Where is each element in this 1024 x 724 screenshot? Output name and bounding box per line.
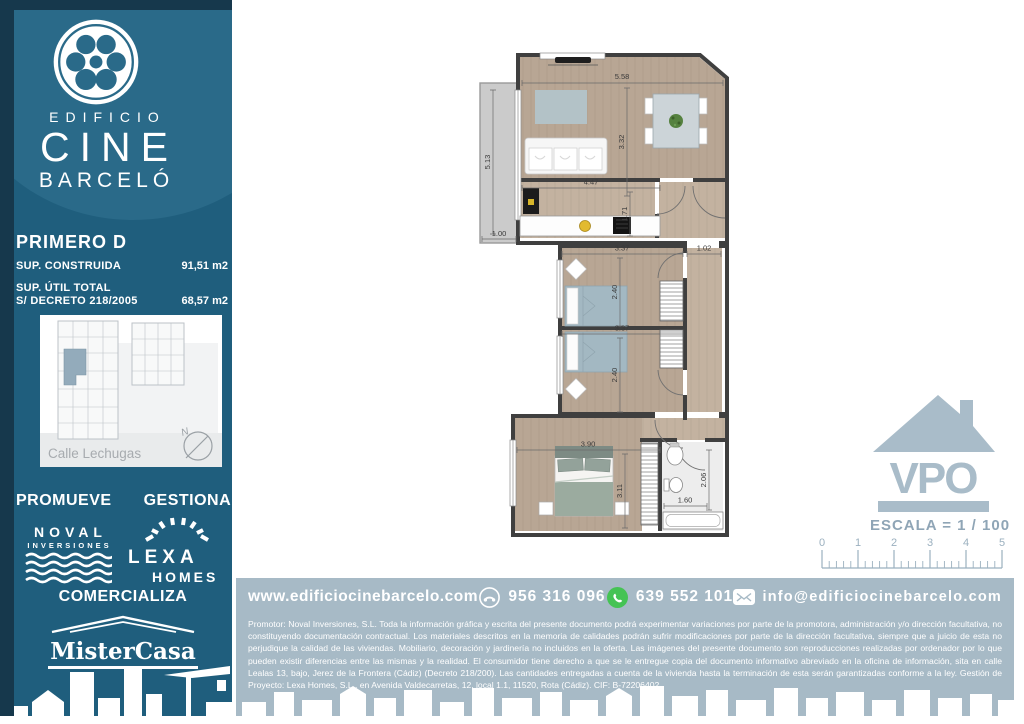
noval-logo: NOVAL INVERSIONES — [18, 524, 118, 589]
vpo-text: VPO — [890, 454, 978, 503]
brand-word-cine: CINE — [14, 125, 194, 169]
promueve-label: PROMUEVE — [16, 492, 112, 510]
scale-label: ESCALA = 1 / 100 — [852, 517, 1024, 534]
mistercasa-roof-icon — [48, 614, 198, 634]
useful-surface-label: SUP. ÚTIL TOTAL S/ DECRETO 218/2005 — [16, 282, 138, 308]
floorplan: 5.58 3.32 5.13 1.00 4.47 1.71 3.37 2.40 … — [455, 38, 805, 583]
site-map-drawing: Calle Lechugas N — [40, 315, 222, 467]
built-surface-row: SUP. CONSTRUIDA 91,51 m2 — [16, 260, 228, 273]
lexa-name: LEXA — [128, 547, 230, 569]
ruler-tick-3: 3 — [927, 537, 933, 549]
brand-word-edificio: EDIFICIO — [14, 109, 194, 125]
film-reel-icon — [50, 16, 142, 108]
ruler-tick-5: 5 — [999, 537, 1005, 549]
scale-ruler: 0 1 2 3 4 5 — [818, 534, 1010, 574]
noval-waves-icon — [24, 552, 112, 584]
dim-dorm1-depth: 2.40 — [610, 285, 619, 300]
plant — [669, 114, 683, 128]
ruler-tick-2: 2 — [891, 537, 897, 549]
phone-contact[interactable]: 956 316 096 — [478, 586, 605, 609]
ruler-tick-1: 1 — [855, 537, 861, 549]
brand-logo: EDIFICIO CINE BARCELÓ — [14, 109, 194, 193]
dim-dorm1-width: 3.37 — [615, 244, 630, 253]
noval-sub: INVERSIONES — [18, 541, 118, 550]
whatsapp-number: 639 552 101 — [636, 588, 733, 606]
sofa — [525, 138, 607, 174]
legal-disclaimer: Promotor: Noval Inversiones, S.L. Toda l… — [248, 618, 1002, 691]
sidebar-panel: EDIFICIO CINE BARCELÓ PRIMERO D SUP. CON… — [14, 10, 232, 716]
vpo-logo: VPO — [870, 393, 997, 515]
sidebar-skyline — [14, 654, 232, 716]
email-address: info@edificiocinebarcelo.com — [762, 589, 1002, 605]
dim-pasillo-width: 1.02 — [697, 244, 712, 253]
lexa-sub: HOMES — [152, 569, 230, 585]
phone-icon — [478, 586, 501, 609]
lexa-sun-icon — [134, 516, 218, 542]
dim-terraza-width: 1.00 — [492, 229, 507, 238]
built-surface-label: SUP. CONSTRUIDA — [16, 260, 121, 273]
dim-dorm2-depth: 2.40 — [610, 368, 619, 383]
building-outline-right — [132, 323, 184, 385]
sidebar: EDIFICIO CINE BARCELÓ PRIMERO D SUP. CON… — [0, 0, 232, 724]
ruler-tick-4: 4 — [963, 537, 969, 549]
built-surface-value: 91,51 m2 — [182, 260, 228, 273]
useful-surface-label-line2: S/ DECRETO 218/2005 — [16, 295, 138, 307]
fruit-bowl — [580, 221, 591, 232]
phone-number: 956 316 096 — [508, 588, 605, 606]
email-icon — [733, 589, 755, 605]
rug — [535, 90, 587, 124]
whatsapp-contact[interactable]: 639 552 101 — [606, 586, 733, 609]
whatsapp-icon — [606, 586, 629, 609]
ruler-tick-0: 0 — [819, 537, 825, 549]
contact-band: www.edificiocinebarcelo.com 956 316 096 … — [236, 578, 1014, 716]
footer-skyline — [236, 682, 1014, 716]
website-link[interactable]: www.edificiocinebarcelo.com — [248, 588, 478, 606]
unit-title: PRIMERO D — [16, 232, 127, 253]
dim-terraza-height: 5.13 — [483, 155, 492, 170]
street-label: Calle Lechugas — [48, 446, 141, 461]
contact-row: www.edificiocinebarcelo.com 956 316 096 … — [236, 578, 1014, 616]
dim-bano-width: 1.60 — [678, 496, 693, 505]
site-map: Calle Lechugas N — [40, 315, 222, 467]
dim-dorm2-width: 3.37 — [615, 324, 630, 333]
lexa-logo: LEXA HOMES — [126, 516, 230, 585]
dim-cocina-width: 4.47 — [584, 178, 599, 187]
dim-dorm3-depth: 3.11 — [615, 484, 624, 498]
dim-cocina-depth: 1.71 — [620, 207, 629, 222]
dining-set — [645, 94, 707, 148]
brochure-page: EDIFICIO CINE BARCELÓ PRIMERO D SUP. CON… — [0, 0, 1024, 724]
useful-surface-label-line1: SUP. ÚTIL TOTAL — [16, 282, 111, 294]
dim-salon-width: 5.58 — [615, 72, 630, 81]
useful-surface-value: 68,57 m2 — [182, 295, 228, 308]
useful-surface-row: SUP. ÚTIL TOTAL S/ DECRETO 218/2005 68,5… — [16, 282, 228, 308]
comercializa-label: COMERCIALIZA — [14, 588, 232, 606]
gestiona-label: GESTIONA — [144, 492, 232, 510]
dim-bano-depth: 2.06 — [699, 473, 708, 488]
noval-name: NOVAL — [18, 524, 118, 540]
roles-row: PROMUEVE GESTIONA — [16, 492, 230, 510]
dim-dorm3-width: 3.90 — [581, 440, 596, 449]
dim-salon-depth: 3.32 — [617, 135, 626, 150]
brand-word-barcelo: BARCELÓ — [14, 169, 194, 193]
email-contact[interactable]: info@edificiocinebarcelo.com — [733, 589, 1002, 605]
bottom-margin — [0, 716, 1024, 724]
